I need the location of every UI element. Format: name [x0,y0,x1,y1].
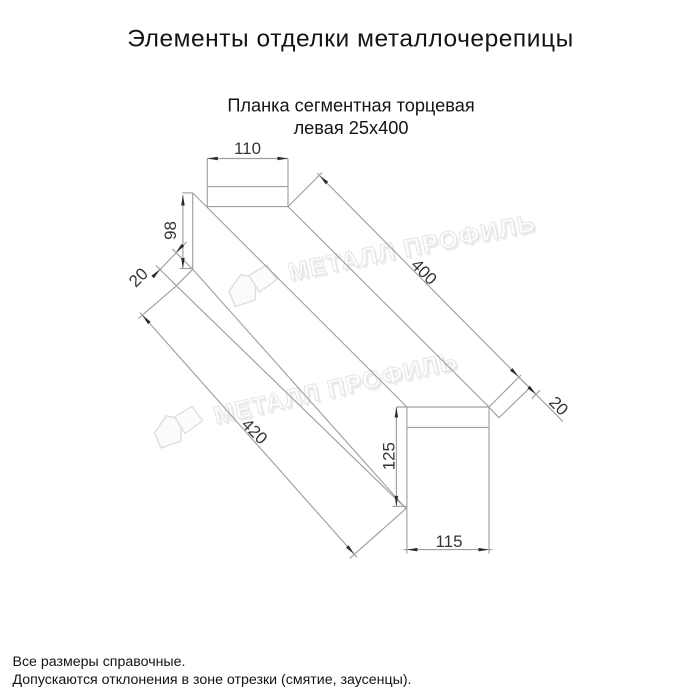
svg-text:Элементы отделки металлочерепи: Элементы отделки металлочерепицы [127,25,573,52]
svg-text:Все размеры справочные.: Все размеры справочные. [13,654,186,670]
svg-text:110: 110 [234,139,261,158]
svg-text:115: 115 [436,532,463,551]
svg-text:98: 98 [161,221,180,240]
svg-text:125: 125 [380,442,399,470]
svg-text:левая 25х400: левая 25х400 [294,118,409,138]
svg-text:Планка сегментная торцевая: Планка сегментная торцевая [227,96,474,116]
svg-text:Допускаются отклонения в зоне: Допускаются отклонения в зоне отрезки (с… [13,672,412,688]
